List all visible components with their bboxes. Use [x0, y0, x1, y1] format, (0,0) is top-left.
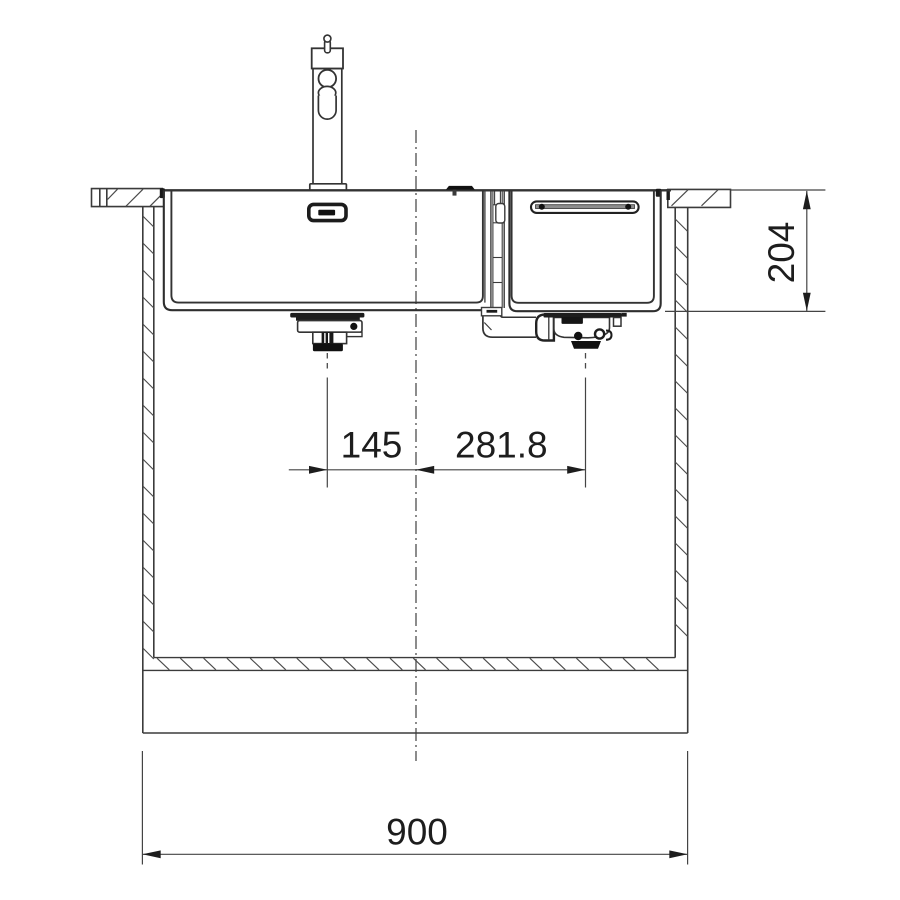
- svg-text:900: 900: [386, 812, 448, 853]
- svg-text:281.8: 281.8: [455, 424, 548, 465]
- svg-text:145: 145: [341, 424, 403, 465]
- svg-text:204: 204: [761, 222, 802, 284]
